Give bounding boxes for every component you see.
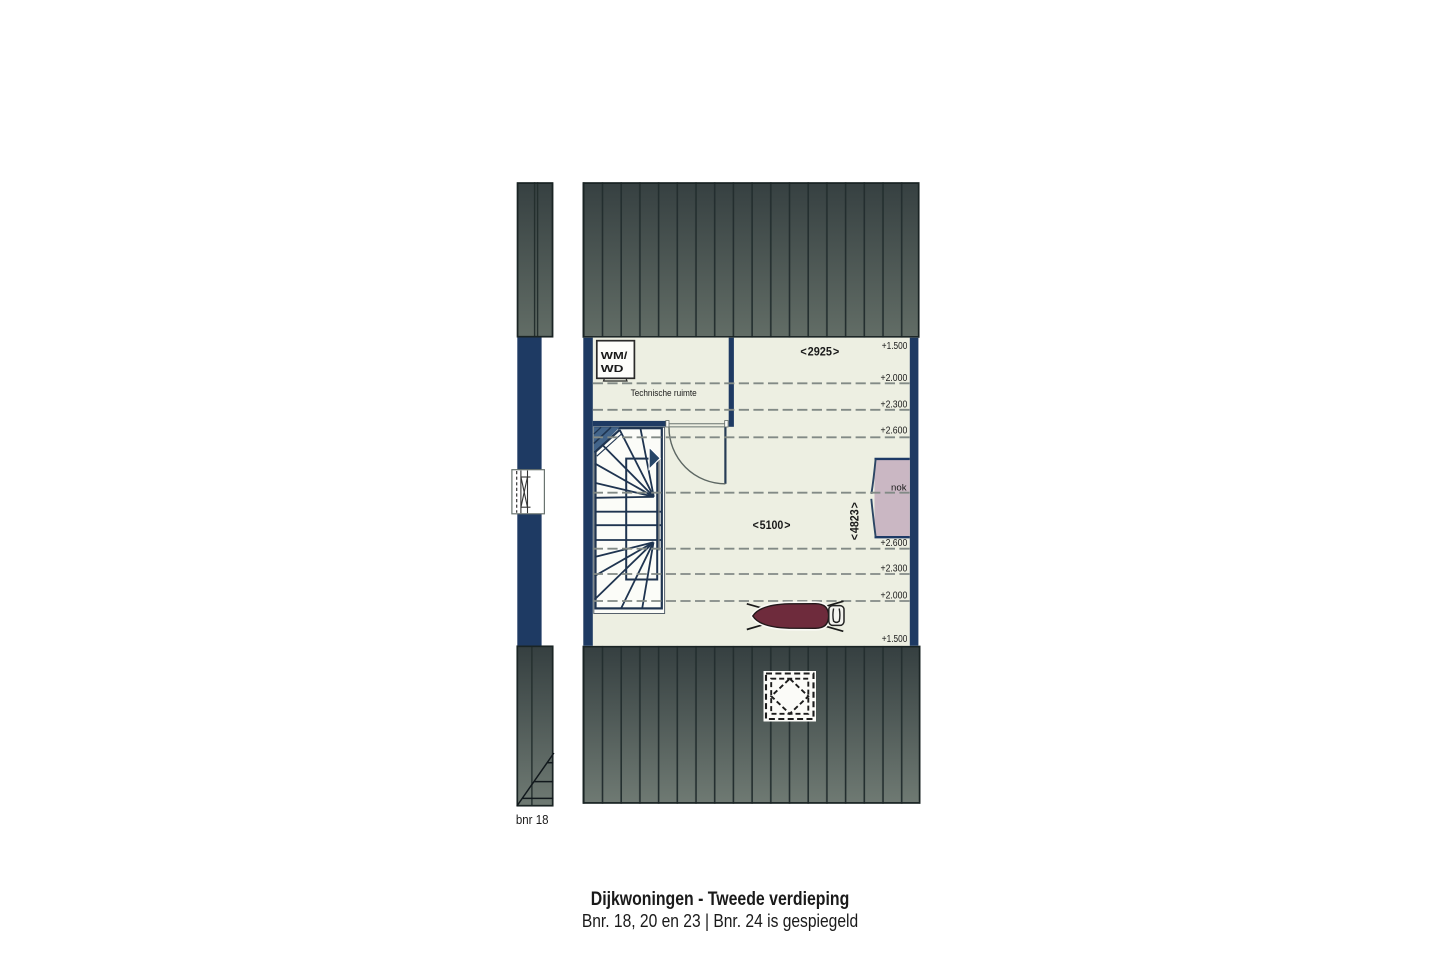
svg-text:WM/: WM/ — [601, 351, 628, 362]
svg-text:+1.500: +1.500 — [882, 341, 908, 352]
svg-text:WD: WD — [601, 364, 624, 375]
svg-text:Bnr. 18, 20 en 23 | Bnr. 24 is: Bnr. 18, 20 en 23 | Bnr. 24 is gespiegel… — [582, 910, 858, 931]
svg-text:bnr 18: bnr 18 — [516, 813, 549, 827]
svg-text:< 5100 >: < 5100 > — [753, 518, 791, 532]
svg-text:+2.600: +2.600 — [881, 538, 908, 549]
svg-text:+2.300: +2.300 — [881, 563, 908, 574]
svg-text:< 4823 >: < 4823 > — [847, 502, 861, 540]
svg-text:Dijkwoningen - Tweede verdiepi: Dijkwoningen - Tweede verdieping — [591, 888, 850, 910]
svg-text:Technische ruimte: Technische ruimte — [631, 387, 697, 398]
svg-text:< 2925 >: < 2925 > — [800, 345, 839, 359]
svg-text:+1.500: +1.500 — [882, 634, 908, 645]
svg-text:+2.000: +2.000 — [881, 590, 908, 601]
svg-text:+2.600: +2.600 — [881, 426, 908, 437]
svg-text:+2.300: +2.300 — [881, 400, 908, 411]
